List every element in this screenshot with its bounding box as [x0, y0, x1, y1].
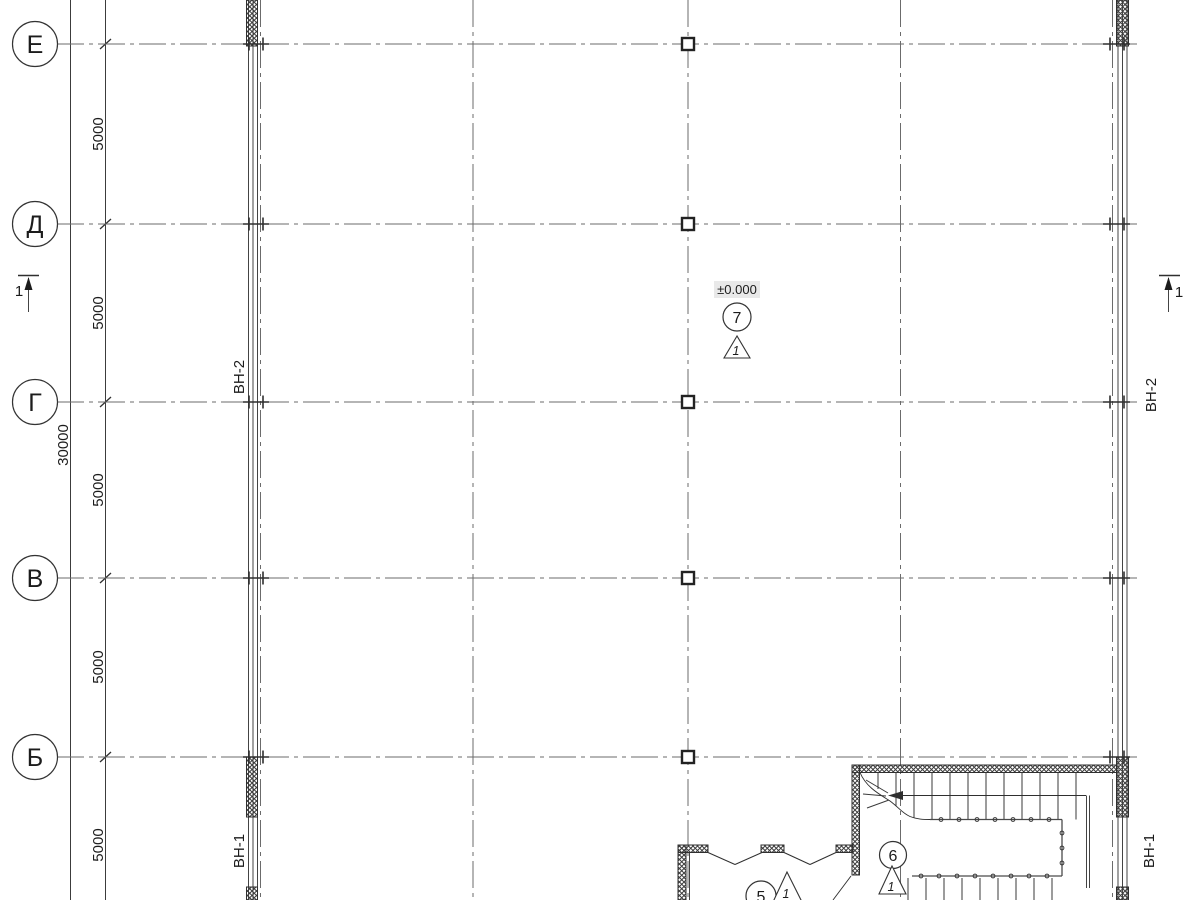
stair-wall-left [852, 765, 860, 875]
partition-wall-vertical [678, 845, 686, 900]
partition-seg-2 [761, 845, 784, 853]
right-wall-pier-B [1117, 757, 1129, 817]
dim-5000-2: 5000 [90, 296, 107, 329]
section-label-right: 1 [1175, 284, 1183, 301]
wall-tag-right-lower: ВН-1 [1141, 834, 1158, 868]
floor-plan-drawing: Е Д Г В Б 5000 5000 5000 5000 5000 30000 [0, 0, 1200, 900]
wall-tag-right-upper: ВН-2 [1143, 378, 1160, 412]
axis-label-V: В [27, 565, 44, 593]
dim-5000-1: 5000 [90, 117, 107, 150]
column-688-V [682, 572, 694, 584]
room-6-number: 6 [889, 848, 898, 865]
room-marker-5: 5 1 [746, 872, 802, 900]
column-688-B [682, 751, 694, 763]
right-wall-pier-bottom [1117, 887, 1129, 900]
axis-label-B: Б [27, 744, 43, 772]
dim-5000-4: 5000 [90, 650, 107, 683]
stair-railing [912, 818, 1064, 878]
wall-tag-left-upper: ВН-2 [231, 360, 248, 394]
room-marker-6: 6 1 [879, 842, 907, 895]
column-tick-right-V [1103, 572, 1130, 585]
dim-5000-3: 5000 [90, 473, 107, 506]
room-marker-7: 7 1 [723, 303, 751, 358]
right-wall-pier-top [1117, 0, 1129, 46]
left-wall-pier-bottom [247, 887, 258, 900]
room-7-number: 7 [733, 310, 742, 327]
column-tick-left-G [243, 396, 269, 409]
level-mark: ±0.000 [714, 281, 760, 298]
room-5-number: 5 [757, 889, 766, 900]
column-tick-right-D [1103, 218, 1130, 231]
axis-label-E: Е [27, 31, 44, 59]
level-value: ±0.000 [717, 282, 757, 297]
section-label-left: 1 [15, 283, 23, 300]
column-tick-left-V [243, 572, 269, 585]
left-wall-pier-B [247, 757, 258, 817]
stair-upper-treads [878, 773, 1076, 820]
column-tick-left-D [243, 218, 269, 231]
room-5-detail: 1 [783, 887, 790, 900]
stair-wall-top [852, 765, 1117, 773]
room-6-detail: 1 [888, 880, 895, 894]
axis-label-G: Г [28, 389, 42, 417]
door-leaves [708, 853, 836, 865]
column-tick-right-G [1103, 396, 1130, 409]
stairwell [833, 765, 1117, 900]
column-688-E [682, 38, 694, 50]
column-688-D [682, 218, 694, 230]
left-wall-pier-top [247, 0, 258, 46]
wall-tags: ВН-2 ВН-2 ВН-1 ВН-1 [231, 360, 1160, 868]
column-688-G [682, 396, 694, 408]
axis-bubbles: Е Д Г В Б [13, 22, 58, 780]
dimension-texts: 5000 5000 5000 5000 5000 30000 [55, 117, 107, 861]
dim-30000: 30000 [55, 424, 72, 466]
room-7-detail: 1 [733, 344, 740, 358]
partition-seg-3 [836, 845, 853, 853]
axis-label-D: Д [27, 211, 44, 239]
left-wall [247, 0, 258, 900]
plan-svg: Е Д Г В Б 5000 5000 5000 5000 5000 30000 [0, 0, 1200, 900]
stair-lower-treads [908, 878, 1052, 900]
right-wall [1117, 0, 1129, 900]
section-mark-right: 1 [1159, 276, 1183, 313]
section-mark-left: 1 [15, 276, 39, 313]
stair-direction-arrow [888, 791, 1090, 888]
wall-tag-left-lower: ВН-1 [231, 834, 248, 868]
dim-5000-5: 5000 [90, 828, 107, 861]
partition-seg-1 [678, 845, 708, 853]
